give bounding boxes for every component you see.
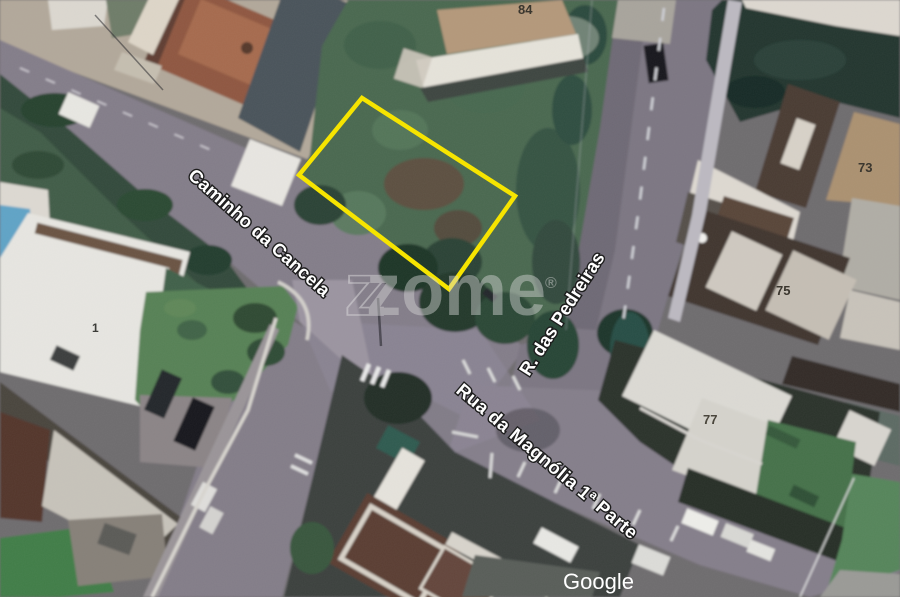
svg-text:84: 84 <box>518 2 533 17</box>
svg-text:zome: zome <box>366 248 546 331</box>
svg-text:77: 77 <box>703 412 717 427</box>
svg-text:Google: Google <box>563 569 634 594</box>
svg-text:1: 1 <box>92 321 99 335</box>
svg-text:®: ® <box>545 275 557 292</box>
svg-text:73: 73 <box>858 160 872 175</box>
svg-text:75: 75 <box>776 283 790 298</box>
